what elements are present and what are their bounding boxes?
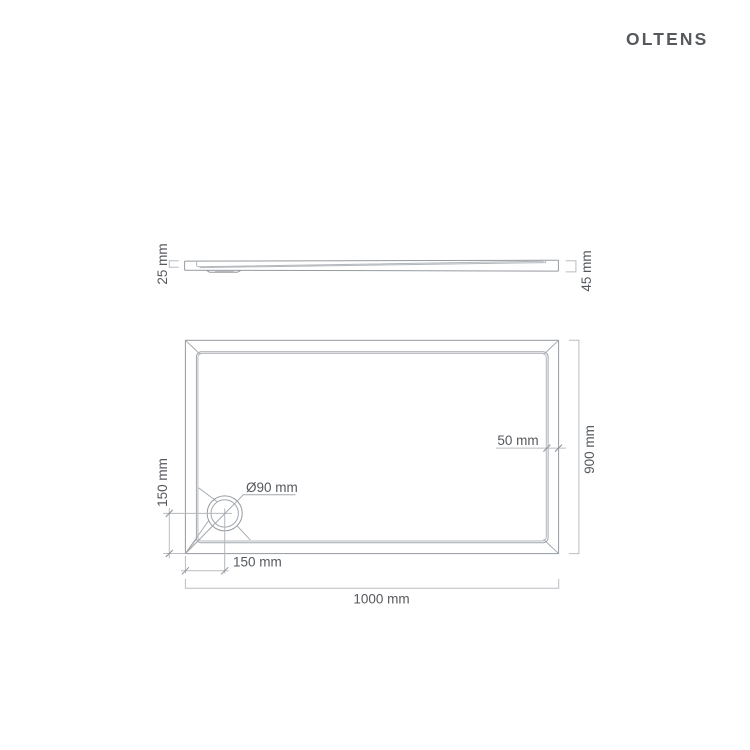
- svg-text:150 mm: 150 mm: [233, 555, 282, 570]
- svg-text:OLTENS: OLTENS: [626, 29, 708, 49]
- svg-text:25 mm: 25 mm: [155, 243, 170, 284]
- svg-text:Ø90 mm: Ø90 mm: [246, 480, 298, 495]
- svg-text:150 mm: 150 mm: [155, 458, 170, 507]
- svg-text:1000 mm: 1000 mm: [353, 591, 409, 606]
- svg-text:45 mm: 45 mm: [579, 250, 594, 291]
- svg-text:900 mm: 900 mm: [582, 425, 597, 474]
- svg-text:50 mm: 50 mm: [497, 433, 538, 448]
